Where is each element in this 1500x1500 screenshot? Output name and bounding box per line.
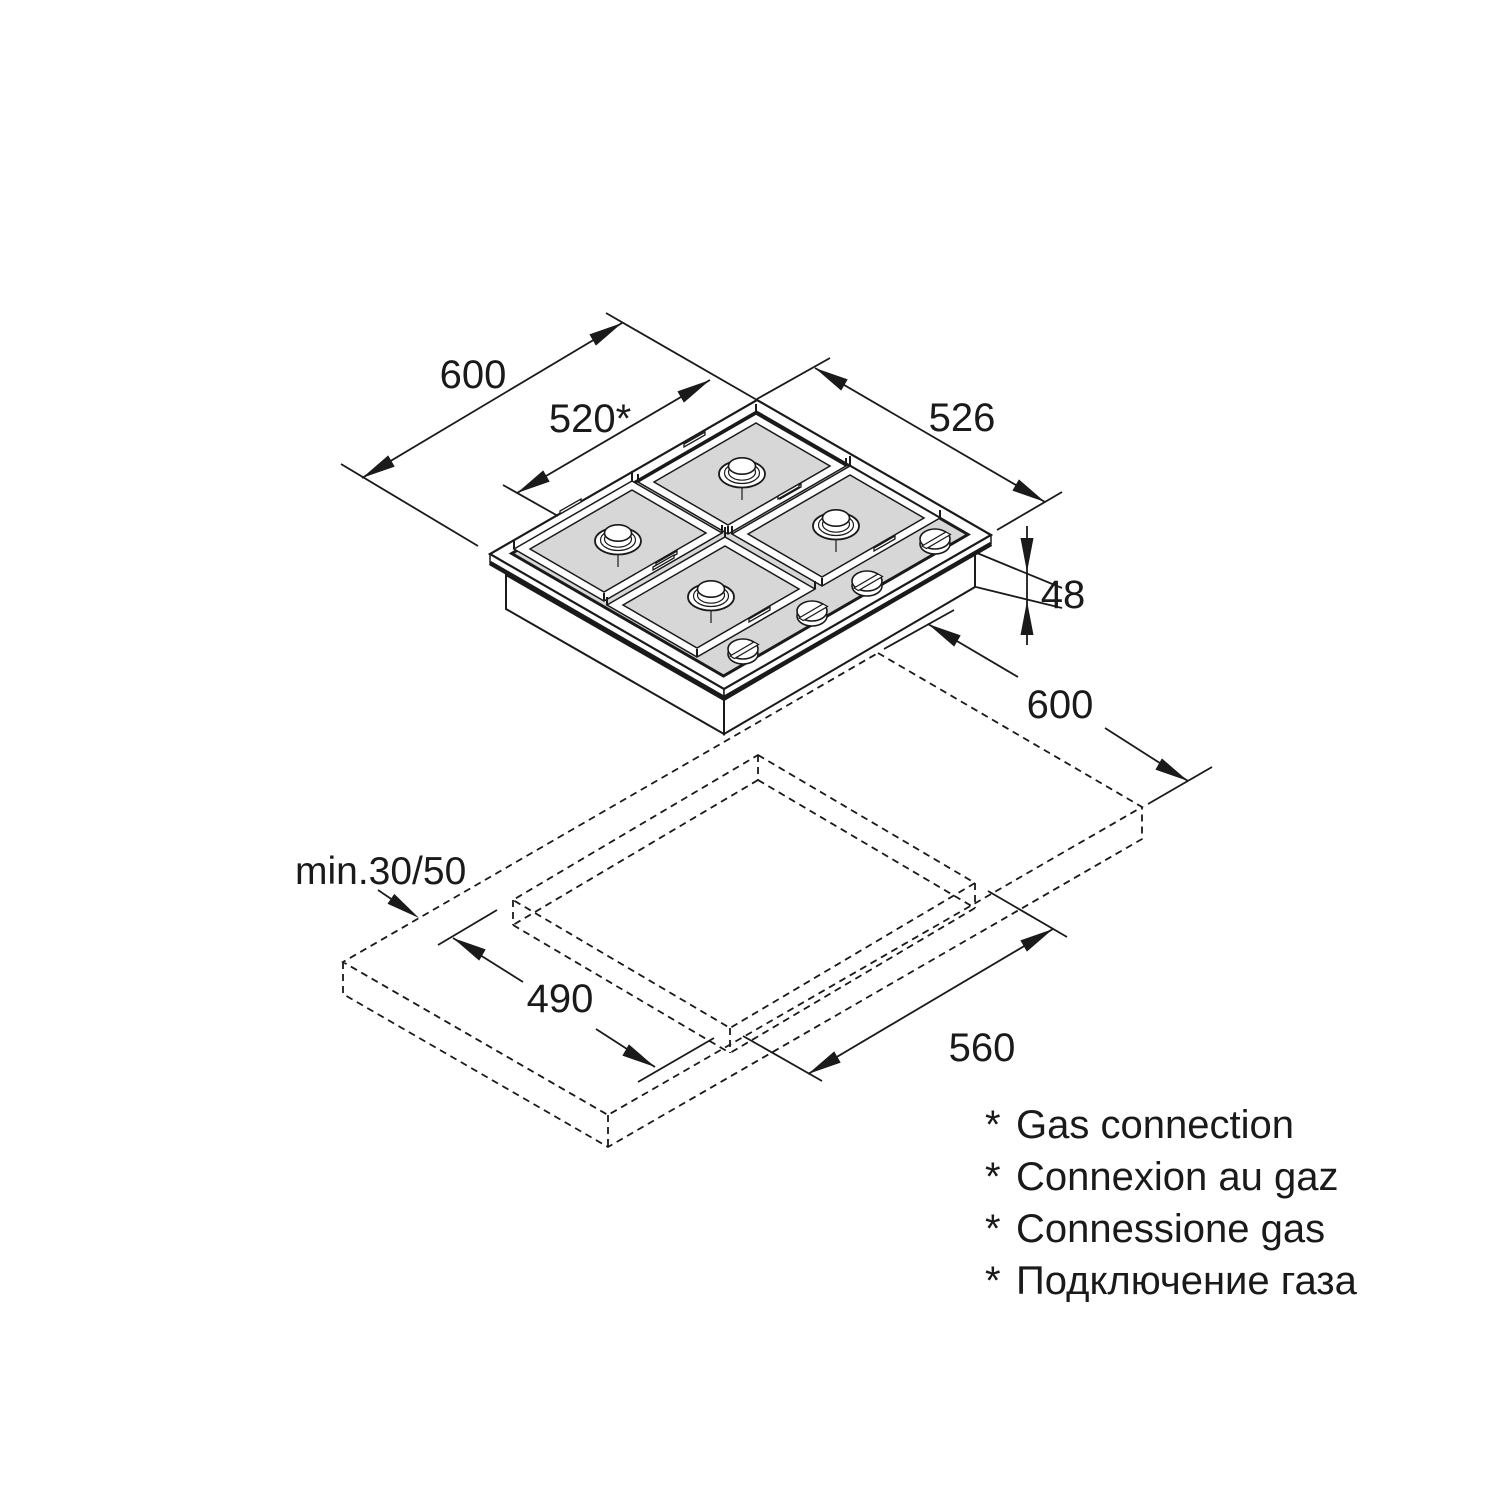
label-cutout-width: 560	[949, 1026, 1016, 1070]
label-edge-clearance: min.30/50	[295, 850, 466, 893]
label-hob-height: 48	[1041, 573, 1086, 617]
footnote-it: * Connessione gas	[985, 1207, 1325, 1251]
knob-1	[920, 529, 951, 554]
footnote-fr: * Connexion au gaz	[985, 1155, 1338, 1199]
knob-3	[797, 601, 828, 626]
knob-2	[852, 571, 883, 596]
label-hob-width: 600	[440, 353, 507, 397]
label-worktop-depth: 600	[1027, 683, 1094, 727]
hob-drawing	[490, 400, 991, 734]
footnotes: * Gas connection * Connexion au gaz * Co…	[985, 1103, 1358, 1303]
label-cutout-depth: 490	[527, 977, 594, 1021]
installation-diagram: 600 520* 526 48 600 min.30/50 490 560 * …	[0, 0, 1500, 1500]
worktop-drawing	[343, 653, 1142, 1147]
knob-4	[728, 639, 759, 664]
dim-cutout-width-560	[743, 891, 1067, 1081]
label-hob-depth: 526	[929, 396, 996, 440]
footnote-ru: * Подключение газа	[985, 1259, 1358, 1303]
footnote-en: * Gas connection	[985, 1103, 1294, 1147]
label-gas-connection-offset: 520*	[549, 397, 631, 441]
dim-edge-clearance-leader	[378, 890, 419, 918]
